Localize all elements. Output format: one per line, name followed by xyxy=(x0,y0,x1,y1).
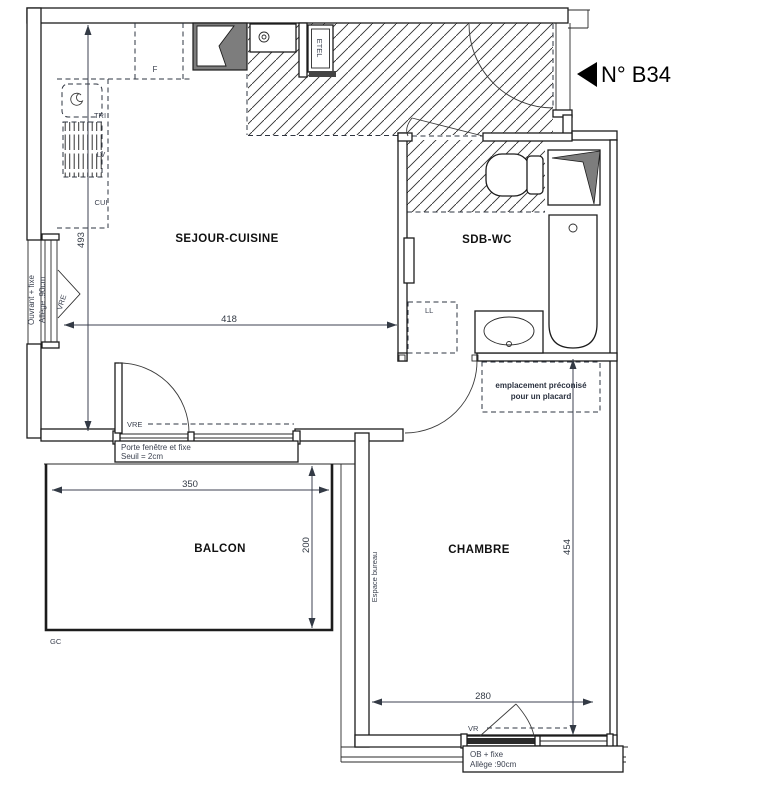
balcony-slab xyxy=(44,464,628,762)
chambre-door xyxy=(399,355,478,433)
dim-350: 350 xyxy=(182,479,198,490)
placard-note-2: pour un placard xyxy=(511,392,572,401)
left-window-sill: Allège :90cm xyxy=(38,277,47,324)
kitchen-sink xyxy=(250,24,296,52)
unit-number: N° B34 xyxy=(601,62,671,87)
washbasin xyxy=(475,311,543,353)
dim-200: 200 xyxy=(301,537,312,553)
spiral-symbol xyxy=(71,93,83,105)
bedroom-window-note-2: Allège :90cm xyxy=(470,760,517,769)
bedroom-window-note-1: OB + fixe xyxy=(470,750,504,759)
wall-niche xyxy=(404,238,414,283)
technical-shaft xyxy=(548,150,600,205)
etel-label: ETEL xyxy=(315,39,324,58)
bedroom-window-shutter: VR xyxy=(468,724,479,733)
room-label-chambre: CHAMBRE xyxy=(448,544,510,556)
room-label-sejour: SEJOUR-CUISINE xyxy=(175,233,278,245)
gc-label: GC xyxy=(50,637,62,646)
dim-493: 493 xyxy=(76,232,87,248)
placard-note-1: emplacement préconisé xyxy=(495,381,587,390)
balcony-door-shutter: VRE xyxy=(127,420,142,429)
balcony-door-window xyxy=(113,363,300,444)
kitchen-counter xyxy=(57,23,190,228)
balcony-door-note-2: Seuil = 2cm xyxy=(121,452,163,461)
left-window xyxy=(42,234,80,348)
kitchen-shaft xyxy=(193,23,247,70)
fridge-label: F xyxy=(153,65,158,74)
bathtub xyxy=(549,215,597,348)
dim-454: 454 xyxy=(562,539,573,555)
room-label-sdb: SDB-WC xyxy=(462,234,512,246)
tri-label: TRI xyxy=(94,111,106,120)
toilet xyxy=(486,154,543,196)
dim-280: 280 xyxy=(475,691,491,702)
dim-418: 418 xyxy=(221,314,237,325)
espace-bureau-label: Espace bureau xyxy=(370,552,379,602)
room-label-balcon: BALCON xyxy=(194,543,246,555)
unit-marker: N° B34 xyxy=(577,62,671,87)
cooker-label: CUI xyxy=(95,198,108,207)
washing-machine-label: LL xyxy=(425,306,433,315)
dishwasher-label: LV xyxy=(97,150,106,159)
bedroom-window xyxy=(461,704,613,748)
entry-arrow-icon xyxy=(577,62,597,87)
left-window-type: Ouvrant + fixe xyxy=(27,274,36,325)
balcony-door-note-1: Porte fenêtre et fixe xyxy=(121,443,191,452)
floor-plan: SEJOUR-CUISINE SDB-WC BALCON CHAMBRE 493… xyxy=(0,0,781,800)
